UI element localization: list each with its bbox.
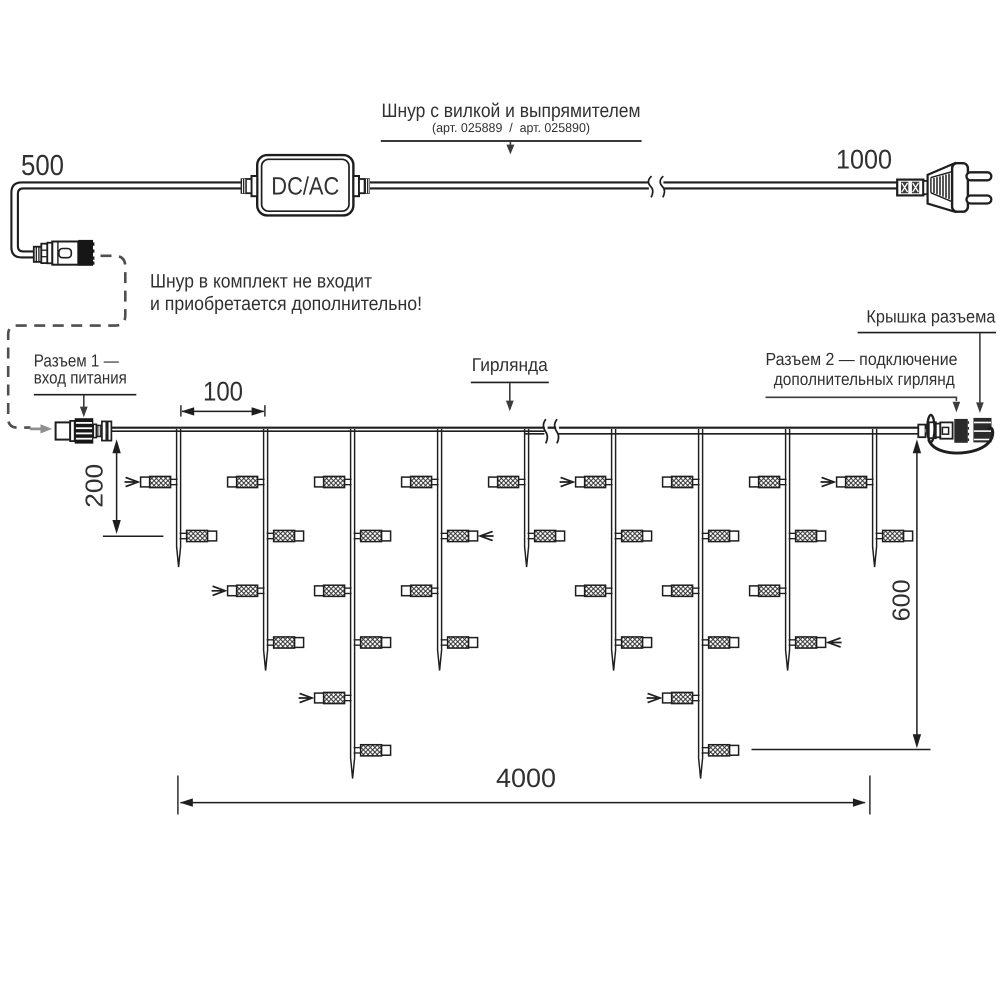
svg-text:500: 500 (21, 150, 64, 182)
svg-text:и приобретается дополнительно!: и приобретается дополнительно! (150, 293, 422, 315)
svg-text:1000: 1000 (836, 145, 892, 175)
svg-text:200: 200 (81, 464, 108, 508)
svg-text:100: 100 (203, 377, 243, 407)
svg-text:дополнительных гирлянд: дополнительных гирлянд (774, 369, 955, 389)
svg-text:600: 600 (889, 579, 916, 621)
svg-text:Крышка разъема: Крышка разъема (866, 307, 995, 327)
svg-text:(арт. 025889 / арт. 025890): (арт. 025889 / арт. 025890) (432, 120, 590, 135)
svg-text:4000: 4000 (496, 763, 556, 793)
svg-text:Гирлянда: Гирлянда (472, 354, 549, 375)
svg-text:Шнур с вилкой и выпрямителем: Шнур с вилкой и выпрямителем (382, 100, 641, 122)
svg-text:Шнур в комплект не входит: Шнур в комплект не входит (150, 270, 372, 292)
svg-text:Разъем 2 — подключение: Разъем 2 — подключение (766, 349, 958, 369)
svg-text:вход питания: вход питания (34, 368, 127, 388)
svg-text:DC/AC: DC/AC (271, 173, 339, 201)
